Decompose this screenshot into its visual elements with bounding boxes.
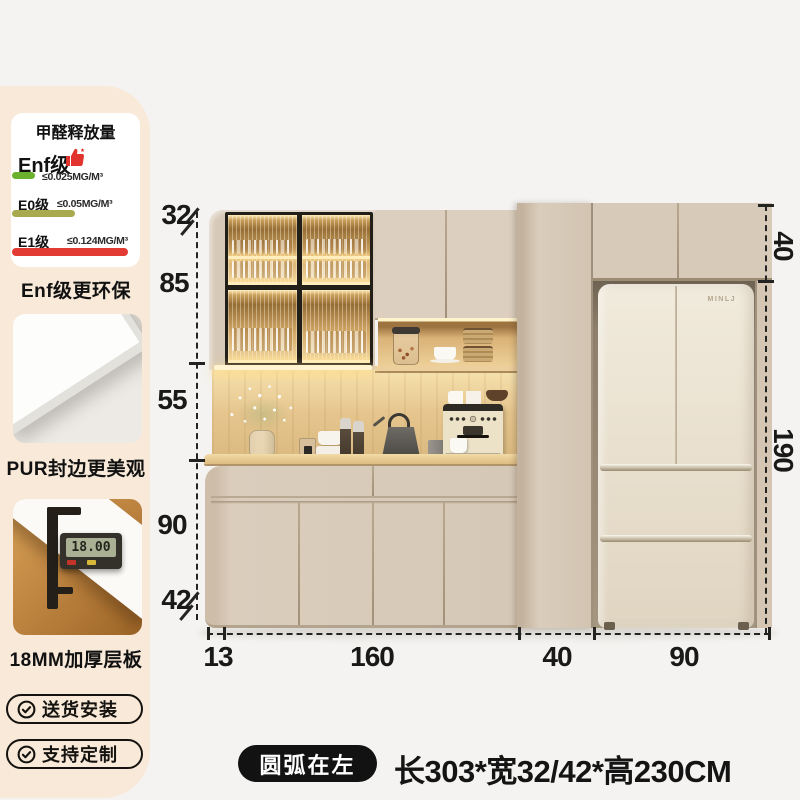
caliper-display: 18.00 (60, 533, 122, 569)
dim-label-90-bottom: 90 (669, 641, 698, 673)
basket (463, 346, 493, 362)
product-detail-image: 甲醛释放量 Enf级 ≤0.025MG/M³ E0级 ≤0.05MG/M³ E1… (0, 0, 800, 800)
check-circle-icon (17, 745, 36, 764)
espresso-cup (450, 438, 467, 453)
dimension-tick (758, 204, 774, 207)
machine-top-tray (443, 404, 503, 411)
drawer-divider (372, 466, 374, 496)
glassware-row (232, 261, 292, 278)
grade-enf-limit: ≤0.025MG/M³ (42, 171, 103, 183)
glassware-row (232, 240, 292, 254)
check-circle-icon (17, 700, 36, 719)
dimension-tick (768, 627, 771, 640)
fridge-foot (604, 622, 615, 630)
base-cabinet (205, 466, 518, 628)
caliper-photo: 18.00 (13, 499, 142, 635)
glassware-row (306, 261, 366, 278)
dimension-tick (189, 362, 205, 365)
dim-label-40-right: 40 (767, 231, 799, 260)
glass-door-pane (302, 215, 371, 285)
dim-label-32: 32 (161, 199, 190, 231)
dim-label-85: 85 (159, 267, 188, 299)
caption-pur-edge: PUR封边更美观 (0, 454, 152, 481)
basket (463, 328, 493, 344)
caliper-button-red (67, 560, 76, 565)
grade-e0-bar (12, 210, 75, 217)
badge-delivery-install: 送货安装 (6, 694, 143, 724)
grade-enf-bar (12, 172, 35, 179)
caption-18mm-board: 18MM加厚层板 (0, 645, 152, 672)
dimension-tick (189, 459, 205, 462)
dimension-tick (593, 627, 596, 640)
pur-edge-photo (13, 314, 142, 443)
door-seam (677, 203, 679, 278)
stacked-cup-top (318, 431, 342, 445)
fridge-door-seam (675, 286, 677, 464)
caliper-reading: 18.00 (66, 538, 116, 557)
shelf-light (302, 282, 371, 285)
dimension-tick (223, 627, 226, 640)
open-shelf-niche (378, 318, 517, 368)
countertop (204, 454, 520, 466)
under-cabinet-light (214, 365, 372, 370)
thumbs-up-icon (63, 146, 87, 170)
shelf-light (228, 282, 297, 285)
dimension-line-bottom (207, 633, 770, 635)
dim-label-90: 90 (157, 509, 186, 541)
refrigerator: MINLJ (598, 284, 754, 628)
drawer-seam (211, 496, 518, 498)
snack-jar (393, 329, 419, 365)
glass-cabinet-frame (225, 212, 373, 366)
grade-e1-bar (12, 248, 128, 256)
caliper-lower-jaw (47, 587, 73, 594)
dimension-tick (207, 627, 210, 640)
jar-lid (392, 327, 420, 334)
saucer (430, 359, 460, 363)
door-seam (298, 502, 300, 625)
glassware-row (232, 328, 292, 351)
dimension-tick (518, 627, 521, 640)
fridge-top-cabinet (593, 203, 772, 281)
badge-customization: 支持定制 (6, 739, 143, 769)
dim-label-40-bottom: 40 (542, 641, 571, 673)
caliper-upper-jaw (47, 507, 81, 515)
size-spec-text: 长303*宽32/42*高230CM (394, 746, 731, 791)
door-seam (372, 502, 374, 625)
glass-door-pane (228, 290, 297, 363)
badge-custom-label: 支持定制 (42, 741, 118, 767)
espresso-machine (443, 404, 503, 461)
upper-middle-cabinet-doors (375, 210, 517, 320)
badge-delivery-label: 送货安装 (42, 696, 118, 722)
drawer-shadow (211, 501, 518, 504)
niche-shelf-board (375, 366, 517, 373)
formaldehyde-card-title: 甲醛释放量 (11, 119, 140, 143)
caption-enf-eco: Enf级更环保 (0, 276, 152, 303)
dim-label-13: 13 (203, 641, 232, 673)
door-seam (445, 210, 447, 318)
white-board-corner (13, 314, 139, 435)
door-seam (443, 502, 445, 625)
glass-display-cabinet (209, 210, 375, 370)
dimension-line-left (196, 212, 198, 620)
fridge-brand-logo: MINLJ (708, 296, 737, 303)
formaldehyde-card: 甲醛释放量 Enf级 ≤0.025MG/M³ E0级 ≤0.05MG/M³ E1… (11, 113, 140, 267)
grade-e0-limit: ≤0.05MG/M³ (57, 198, 112, 210)
freezer-drawer-handle (600, 535, 752, 542)
glassware-row (306, 239, 366, 254)
caliper-button-yellow (87, 560, 96, 565)
dimension-line-right (765, 205, 767, 634)
glass-door-pane (302, 290, 371, 363)
freezer-drawer-handle (600, 464, 752, 471)
flower-arrangement (222, 381, 304, 437)
espresso-cups (448, 391, 484, 404)
shelf-light (228, 360, 297, 363)
shelf-light (302, 360, 371, 363)
arc-position-badge: 圆弧在左 (238, 745, 377, 782)
glassware-row (306, 331, 366, 353)
group-head (463, 426, 483, 435)
machine-dials (448, 415, 498, 423)
fridge-foot (738, 622, 749, 630)
glass-door-pane (228, 215, 297, 285)
shelf-light (302, 256, 371, 259)
storage-baskets (463, 328, 493, 365)
dim-label-190: 190 (767, 428, 799, 472)
dim-label-160: 160 (350, 641, 394, 673)
grade-e1-limit: ≤0.124MG/M³ (67, 235, 128, 247)
shelf-light (228, 256, 297, 259)
dim-label-42: 42 (161, 584, 190, 616)
dimension-tick (758, 280, 774, 283)
wooden-bowl (486, 390, 508, 401)
dim-label-55: 55 (157, 384, 186, 416)
tall-cabinet-column (517, 203, 593, 628)
